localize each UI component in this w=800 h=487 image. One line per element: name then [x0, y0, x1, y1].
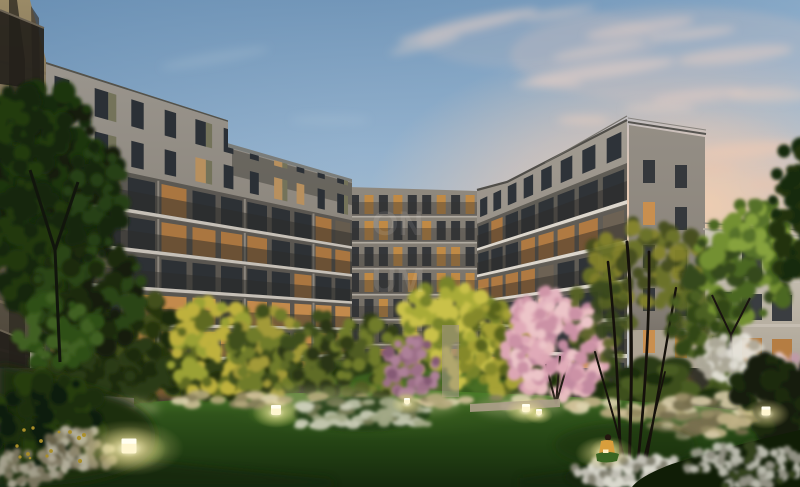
svg-text:UM: UM	[372, 262, 425, 300]
svg-text:ON: ON	[372, 205, 423, 243]
